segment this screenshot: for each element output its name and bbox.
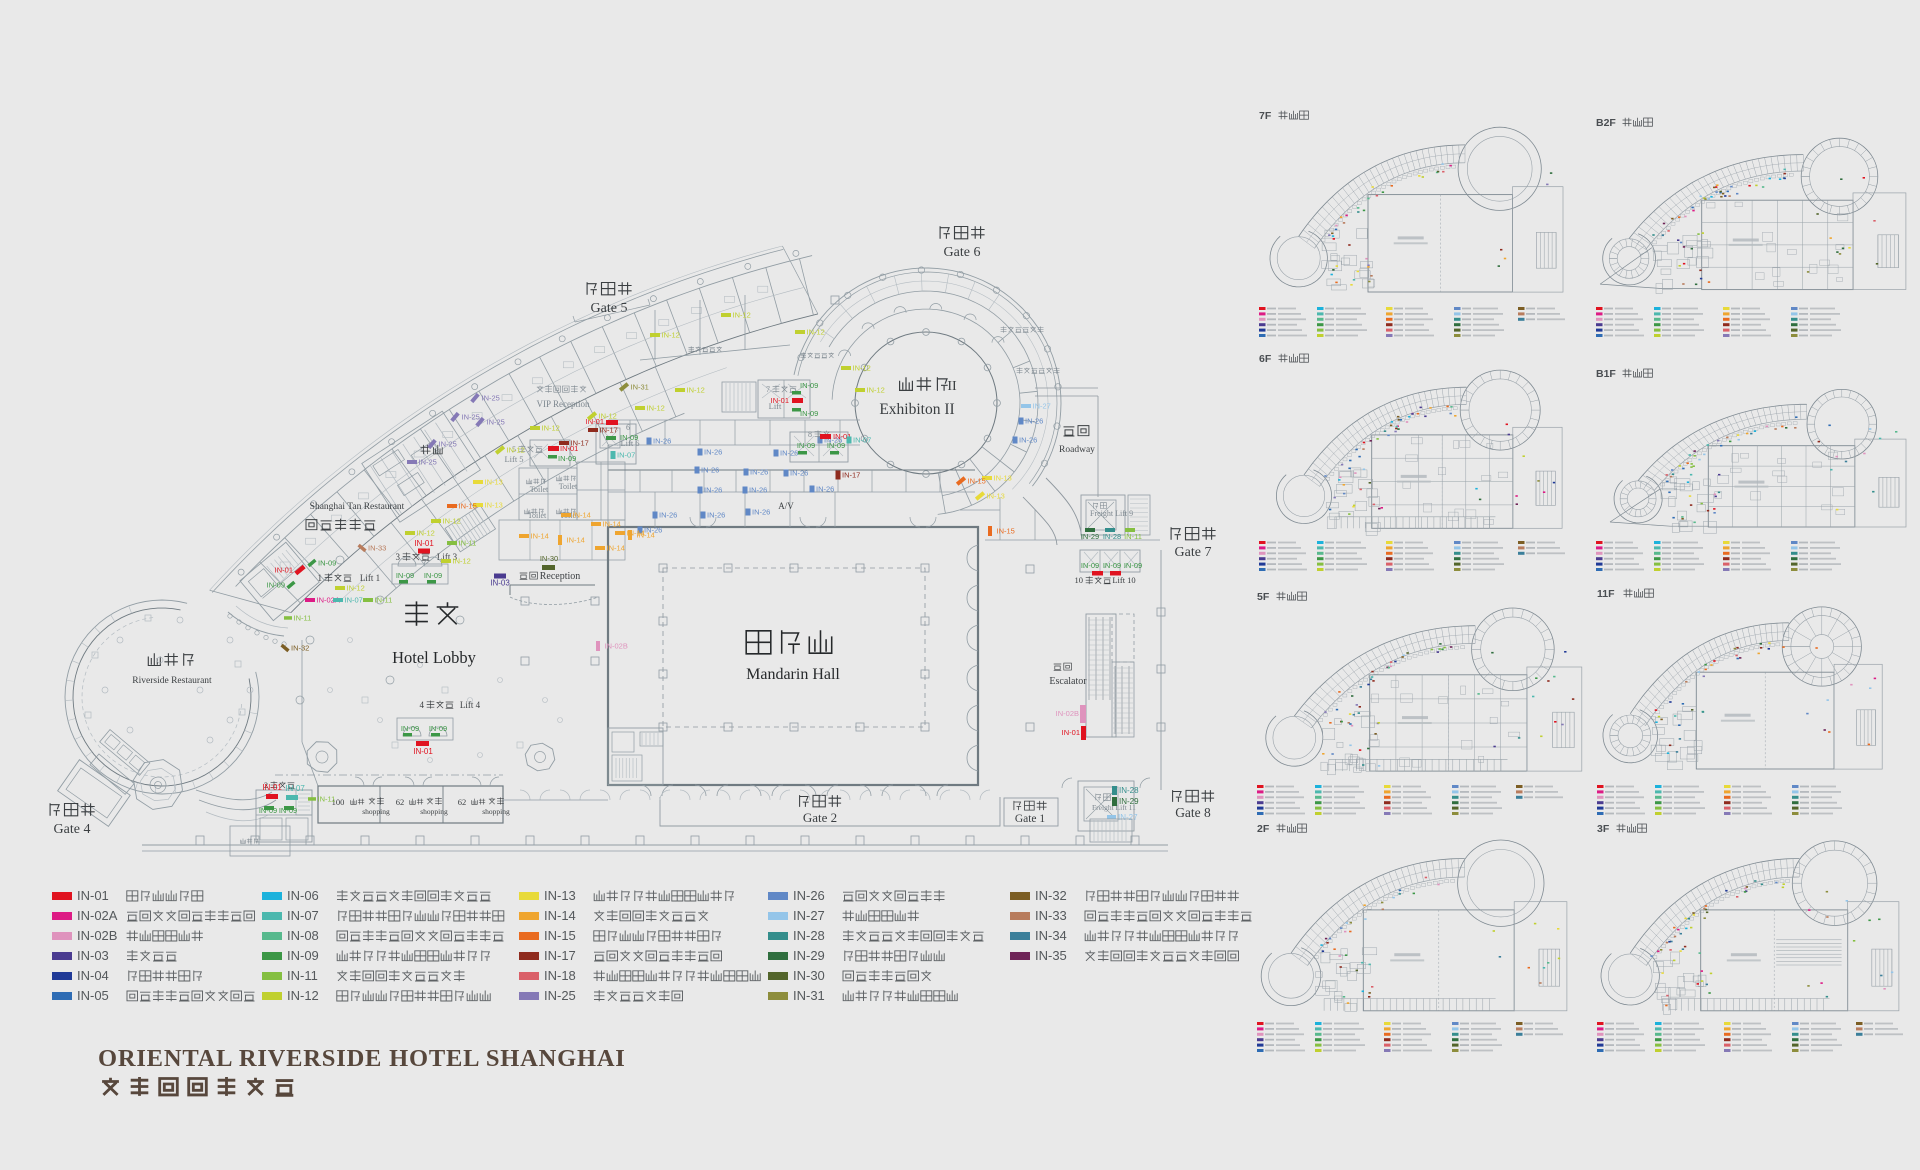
- svg-text:3F: 3F: [1597, 823, 1610, 835]
- svg-text:Reception: Reception: [540, 571, 581, 582]
- svg-text:IN-13: IN-13: [544, 888, 576, 903]
- svg-text:IN-12: IN-12: [542, 424, 560, 433]
- svg-text:IN-25: IN-25: [544, 988, 576, 1003]
- svg-text:Gate 2: Gate 2: [803, 810, 837, 825]
- svg-text:Riverside Restaurant: Riverside Restaurant: [132, 676, 212, 686]
- svg-text:IN-26: IN-26: [816, 485, 834, 494]
- svg-text:IN-01: IN-01: [77, 888, 109, 903]
- svg-text:IN-12: IN-12: [287, 988, 319, 1003]
- svg-text:IN-26: IN-26: [704, 448, 722, 457]
- svg-text:IN-12: IN-12: [647, 404, 665, 413]
- svg-text:IN-28: IN-28: [793, 928, 825, 943]
- svg-text:IN-09: IN-09: [396, 571, 414, 580]
- svg-text:IN-03: IN-03: [77, 948, 109, 963]
- svg-text:IN-25: IN-25: [482, 394, 500, 403]
- svg-text:11F: 11F: [1597, 588, 1615, 600]
- svg-text:A/V: A/V: [778, 501, 794, 511]
- svg-text:IN-17: IN-17: [600, 426, 618, 435]
- svg-text:ORIENTAL RIVERSIDE HOTEL SHANG: ORIENTAL RIVERSIDE HOTEL SHANGHAI: [98, 1045, 626, 1072]
- svg-text:IN-09: IN-09: [1081, 561, 1099, 570]
- svg-text:IN-26: IN-26: [749, 486, 767, 495]
- svg-text:IN-12: IN-12: [853, 364, 871, 373]
- svg-text:IN-12: IN-12: [347, 584, 365, 593]
- svg-text:IN-07: IN-07: [345, 596, 363, 605]
- svg-text:IN-01: IN-01: [771, 396, 789, 405]
- svg-text:IN-12: IN-12: [867, 386, 885, 395]
- svg-text:IN-15: IN-15: [968, 477, 986, 486]
- svg-text:shopping: shopping: [362, 807, 390, 816]
- svg-text:Mandarin Hall: Mandarin Hall: [746, 666, 840, 683]
- svg-text:IN-09: IN-09: [558, 454, 576, 463]
- svg-text:IN-09: IN-09: [279, 806, 297, 815]
- svg-text:Gate 8: Gate 8: [1175, 805, 1211, 820]
- svg-text:IN-12: IN-12: [599, 412, 617, 421]
- svg-text:IN-15: IN-15: [459, 502, 477, 511]
- svg-text:IN-13: IN-13: [485, 478, 503, 487]
- svg-text:1: 1: [318, 573, 323, 583]
- svg-text:7F: 7F: [1259, 110, 1272, 122]
- svg-text:shopping: shopping: [420, 807, 448, 816]
- svg-text:B1F: B1F: [1596, 368, 1616, 380]
- svg-text:IN-09: IN-09: [800, 381, 818, 390]
- svg-text:IN-14: IN-14: [531, 532, 549, 541]
- svg-text:IN-17: IN-17: [544, 948, 576, 963]
- svg-text:2F: 2F: [1257, 823, 1270, 835]
- svg-text:IN-32: IN-32: [1035, 888, 1067, 903]
- svg-text:IN-14: IN-14: [627, 529, 645, 538]
- svg-text:IN-29: IN-29: [793, 948, 825, 963]
- svg-text:Escalator: Escalator: [1049, 676, 1087, 687]
- svg-text:IN-09: IN-09: [318, 559, 336, 568]
- svg-text:IN-26: IN-26: [750, 468, 768, 477]
- svg-text:IN-26: IN-26: [1019, 436, 1037, 445]
- svg-text:IN-11: IN-11: [287, 968, 318, 983]
- svg-text:6F: 6F: [1259, 353, 1272, 365]
- svg-text:IN-33: IN-33: [368, 544, 386, 553]
- svg-text:IN-07: IN-07: [287, 908, 319, 923]
- svg-text:IN-02B: IN-02B: [1056, 709, 1079, 718]
- svg-text:8: 8: [808, 430, 812, 439]
- svg-text:IN-07: IN-07: [285, 784, 305, 793]
- svg-text:IN-27: IN-27: [793, 908, 825, 923]
- svg-text:IN-14: IN-14: [607, 544, 625, 553]
- svg-text:Gate 7: Gate 7: [1175, 545, 1212, 560]
- svg-text:IN-09: IN-09: [267, 581, 285, 590]
- svg-text:Gate 6: Gate 6: [944, 245, 981, 260]
- svg-text:IN-12: IN-12: [507, 446, 525, 455]
- svg-text:IN-26: IN-26: [1025, 417, 1043, 426]
- svg-text:Lift 1: Lift 1: [360, 573, 380, 583]
- svg-text:IN-14: IN-14: [603, 520, 621, 529]
- svg-text:IN-09: IN-09: [424, 571, 442, 580]
- svg-text:62: 62: [458, 797, 467, 807]
- svg-text:IN-31: IN-31: [631, 383, 649, 392]
- svg-text:Gate 4: Gate 4: [54, 822, 91, 837]
- svg-text:Roadway: Roadway: [1059, 445, 1095, 455]
- svg-text:IN-05: IN-05: [77, 988, 109, 1003]
- svg-text:Hotel Lobby: Hotel Lobby: [392, 648, 477, 667]
- svg-text:IN-09: IN-09: [827, 441, 845, 450]
- svg-text:IN-26: IN-26: [704, 486, 722, 495]
- svg-text:IN-09: IN-09: [259, 806, 277, 815]
- svg-text:IN-01: IN-01: [414, 539, 434, 548]
- svg-text:5F: 5F: [1257, 591, 1270, 603]
- svg-text:IN-11: IN-11: [375, 596, 393, 605]
- svg-text:IN-13: IN-13: [987, 492, 1005, 501]
- svg-text:IN-01: IN-01: [262, 783, 282, 792]
- svg-text:IN-09: IN-09: [800, 409, 818, 418]
- svg-text:IN-02B: IN-02B: [77, 928, 117, 943]
- svg-text:Shanghai Tan Restaurant: Shanghai Tan Restaurant: [310, 502, 405, 512]
- svg-text:IN-11: IN-11: [318, 795, 336, 804]
- svg-text:IN-26: IN-26: [653, 437, 671, 446]
- svg-text:Gate 1: Gate 1: [1015, 813, 1046, 825]
- svg-text:IN-30: IN-30: [540, 554, 558, 563]
- svg-text:IN-12: IN-12: [453, 557, 471, 566]
- svg-text:IN-25: IN-25: [462, 413, 480, 422]
- svg-text:IN-32: IN-32: [291, 644, 309, 653]
- svg-text:Lift 4: Lift 4: [460, 700, 481, 710]
- svg-text:IN-11: IN-11: [1124, 532, 1142, 541]
- svg-text:IN-26: IN-26: [780, 449, 798, 458]
- svg-text:IN-35: IN-35: [1035, 948, 1067, 963]
- svg-text:IN-34: IN-34: [1035, 928, 1067, 943]
- svg-text:Toilet: Toilet: [559, 482, 578, 491]
- svg-text:IN-30: IN-30: [793, 968, 825, 983]
- svg-text:IN-33: IN-33: [1035, 908, 1067, 923]
- svg-text:IN-12: IN-12: [687, 386, 705, 395]
- svg-text:IN-26: IN-26: [659, 511, 677, 520]
- svg-text:IN-03: IN-03: [490, 579, 510, 588]
- svg-text:IN-14: IN-14: [573, 511, 591, 520]
- svg-text:IN-14: IN-14: [567, 536, 585, 545]
- svg-text:IN-01: IN-01: [413, 747, 433, 756]
- svg-text:Lift 6: Lift 6: [620, 438, 639, 448]
- svg-text:IN-11: IN-11: [459, 539, 477, 548]
- svg-text:4: 4: [420, 700, 425, 710]
- svg-text:IN-09: IN-09: [1124, 561, 1142, 570]
- svg-text:IN-27: IN-27: [1118, 813, 1138, 822]
- svg-text:Gate 5: Gate 5: [591, 301, 628, 316]
- svg-text:IN-12: IN-12: [733, 311, 751, 320]
- svg-text:IN-15: IN-15: [544, 928, 576, 943]
- svg-text:62: 62: [396, 797, 405, 807]
- svg-text:Toilet: Toilet: [528, 511, 547, 520]
- svg-text:Lift 10: Lift 10: [1112, 575, 1135, 585]
- svg-text:IN-02A: IN-02A: [77, 908, 118, 923]
- svg-text:IN-12: IN-12: [443, 517, 461, 526]
- svg-text:B2F: B2F: [1596, 117, 1616, 129]
- svg-text:IN-13: IN-13: [994, 474, 1012, 483]
- svg-text:IN-12: IN-12: [662, 331, 680, 340]
- svg-text:Freight Lift 9: Freight Lift 9: [1090, 509, 1133, 518]
- svg-text:IN-25: IN-25: [487, 418, 505, 427]
- svg-text:IN-29: IN-29: [1081, 532, 1099, 541]
- svg-text:Toilet: Toilet: [530, 485, 549, 494]
- svg-text:IN-06: IN-06: [287, 888, 319, 903]
- svg-text:IN-02B: IN-02B: [605, 642, 628, 651]
- svg-text:IN-27: IN-27: [1033, 402, 1051, 411]
- svg-text:IN-01: IN-01: [1062, 728, 1080, 737]
- svg-text:IN-04: IN-04: [77, 968, 109, 983]
- svg-text:IN-28: IN-28: [1103, 532, 1121, 541]
- svg-text:Lift 5: Lift 5: [504, 454, 523, 464]
- svg-text:IN-07: IN-07: [617, 451, 635, 460]
- svg-text:IN-01: IN-01: [275, 566, 293, 575]
- svg-text:IN-17: IN-17: [842, 471, 860, 480]
- svg-text:IN-25: IN-25: [419, 458, 437, 467]
- svg-text:IN-12: IN-12: [417, 529, 435, 538]
- svg-text:IN-14: IN-14: [544, 908, 576, 923]
- svg-text:IN-13: IN-13: [485, 501, 503, 510]
- svg-text:IN-07: IN-07: [853, 436, 871, 445]
- svg-text:IN-29: IN-29: [1119, 797, 1139, 806]
- svg-text:IN-26: IN-26: [793, 888, 825, 903]
- svg-text:IN-11: IN-11: [294, 614, 312, 623]
- svg-text:IN-09: IN-09: [797, 441, 815, 450]
- svg-text:IN-18: IN-18: [544, 968, 576, 983]
- svg-text:IN-17: IN-17: [571, 439, 589, 448]
- svg-text:7: 7: [766, 385, 770, 394]
- svg-text:IN-26: IN-26: [701, 466, 719, 475]
- svg-text:IN-09: IN-09: [287, 948, 319, 963]
- svg-text:IN-09: IN-09: [1103, 561, 1121, 570]
- svg-text:IN-26: IN-26: [707, 511, 725, 520]
- svg-text:IN-09: IN-09: [401, 724, 419, 733]
- svg-text:IN-12: IN-12: [807, 328, 825, 337]
- svg-text:IN-25: IN-25: [439, 440, 457, 449]
- svg-text:IN-28: IN-28: [1119, 786, 1139, 795]
- svg-text:10: 10: [1075, 575, 1084, 585]
- svg-text:IN-31: IN-31: [793, 988, 825, 1003]
- svg-text:Exhibiton II: Exhibiton II: [879, 401, 954, 418]
- svg-text:6: 6: [626, 423, 630, 432]
- svg-text:VIP Reception: VIP Reception: [537, 399, 590, 409]
- svg-text:IN-26: IN-26: [790, 469, 808, 478]
- svg-text:IN-26: IN-26: [752, 508, 770, 517]
- svg-text:IN-15: IN-15: [997, 527, 1015, 536]
- svg-text:shopping: shopping: [482, 807, 510, 816]
- svg-text:II: II: [947, 379, 957, 394]
- svg-text:IN-08: IN-08: [287, 928, 319, 943]
- svg-text:IN-09: IN-09: [429, 724, 447, 733]
